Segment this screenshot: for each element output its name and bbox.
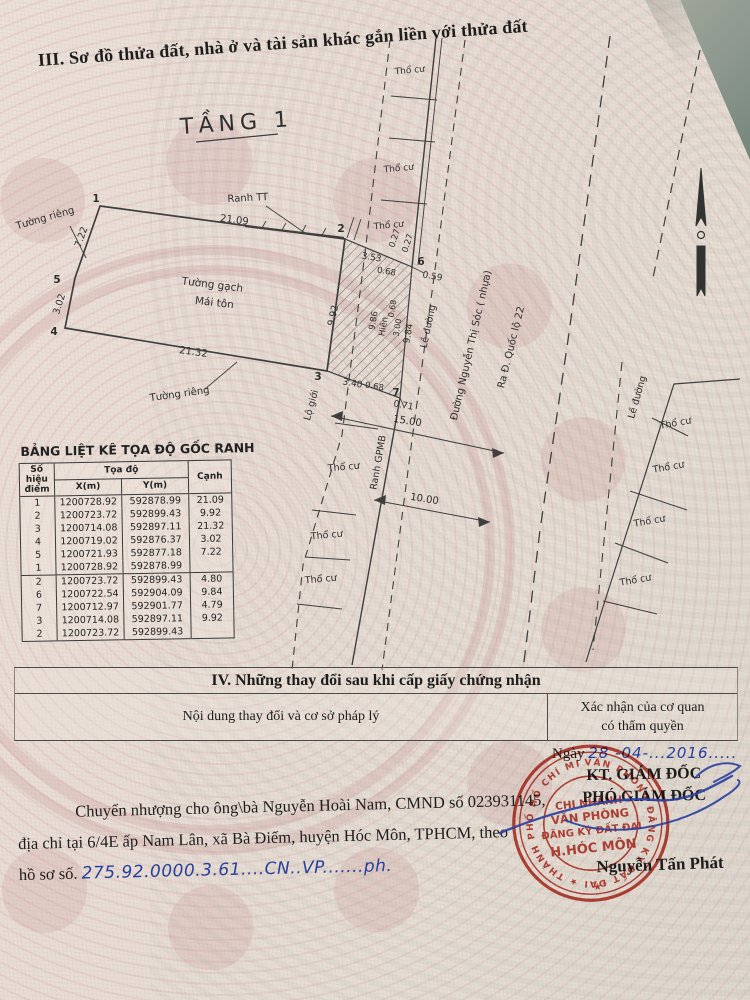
col-header-point: Số hiệu điểm [19,463,55,497]
tuong-rieng-label-top: Tường riêng [14,204,76,232]
coordinate-table-block: BẢNG LIỆT KÊ TỌA ĐỘ GỐC RANH Số hiệu điể… [18,440,258,642]
point-5: 5 [53,274,60,286]
section4-col-left-header: Nội dung thay đổi và cơ sở pháp lý [15,694,547,740]
ranh-tt-line [245,206,344,238]
to-highway-label: Ra Đ. Quốc lộ 22 [495,305,527,389]
tuong-rieng-label-bottom: Tường riêng [148,384,210,404]
dim-071: 0.71 [393,399,414,412]
dim-068-bottom: 0.68 [364,380,384,393]
dim-bottom-edge: 21.32 [178,345,208,360]
point-7: 7 [392,387,399,399]
north-arrow-icon [696,168,706,296]
coordinate-table: Số hiệu điểm Tọa độ Cạnh X(m) Y(m) 11200… [19,459,235,642]
right-le-duong-dashed-line [593,362,622,650]
col-header-x: X(m) [54,478,121,496]
stamp-star: ★ [593,881,603,893]
dim-059: 0.59 [422,270,444,283]
dim-340: 3.40 [342,377,364,390]
tho-cu-right-4: Thổ cư [618,572,653,589]
section4-header-row: Nội dung thay đổi và cơ sở pháp lý Xác n… [15,694,737,740]
col-header-point-line1: Số hiệu [26,465,48,485]
coordinate-group-2: 21200723.72592899.434.80 61200722.545929… [21,572,234,642]
dimension-15m-label: 15.00 [392,414,422,429]
section4-box: IV. Những thay đổi sau khi cấp giấy chứn… [14,667,738,741]
point-4: 4 [50,326,57,338]
point-6: 6 [417,256,424,268]
ranh-tt-label: Ranh TT [227,192,269,205]
section4-col-right-line2: có thẩm quyền [550,717,735,736]
tho-cu-right-2: Thổ cư [651,459,686,476]
dossier-number-label: hồ sơ số. [19,864,78,884]
tho-cu-left-1: Thổ cư [326,461,361,475]
dossier-number-handwritten: 275.92.0000.3.61....CN..VP.......ph. [81,856,392,884]
dim-top-edge: 21.09 [219,213,249,227]
lo-gioi-label: Lộ giới [302,389,321,422]
dim-left-lower: 3.02 [51,292,68,316]
tho-cu-left-3: Thổ cư [303,573,338,587]
point-3: 3 [314,371,321,383]
mai-ton-label: Mái tôn [194,295,234,312]
coordinate-table-title: BẢNG LIỆT KÊ TỌA ĐỘ GỐC RANH [20,440,254,459]
col-header-y: Y(m) [121,477,188,495]
dimension-10m-label: 10.00 [409,492,439,507]
dim-027-a: 0.27 [387,228,402,249]
col-header-edge: Cạnh [188,460,232,494]
street-far-edge-dashed-line [523,36,610,670]
point-1: 1 [92,193,99,205]
section4-col-right-header: Xác nhận của cơ quan có thẩm quyền [547,694,737,740]
coordinate-group-1: 11200728.92592878.9921.09 21200723.72592… [20,493,233,576]
le-duong-label-right: Lề đường [626,375,649,420]
tho-cu-right-3: Thổ cư [632,513,667,530]
tho-cu-top-1: Thổ cư [393,64,426,78]
col-header-point-line2: điểm [24,485,49,495]
upper-right-dashed-line [653,50,700,278]
signature-scribble [470,748,750,868]
section4-col-right-line1: Xác nhận của cơ quan [550,698,735,717]
point-2: 2 [337,223,344,235]
tuong-gach-label: Tường gạch [180,275,244,295]
document-photo: III. Sơ đồ thửa đất, nhà ở và tài sản kh… [0,0,750,1000]
ranh-gpmb-label: Ranh GPMB [368,434,388,490]
dim-strip-right: 9.84 [402,323,415,345]
street-name-label: Đường Nguyễn Thị Sóc ( nhựa) [447,269,494,422]
tho-cu-left-2: Thổ cư [309,529,344,543]
tho-cu-top-2: Thổ cư [382,162,415,176]
section4-title: IV. Những thay đổi sau khi cấp giấy chứn… [15,668,737,694]
le-duong-label-left: Lề đường [419,304,439,349]
